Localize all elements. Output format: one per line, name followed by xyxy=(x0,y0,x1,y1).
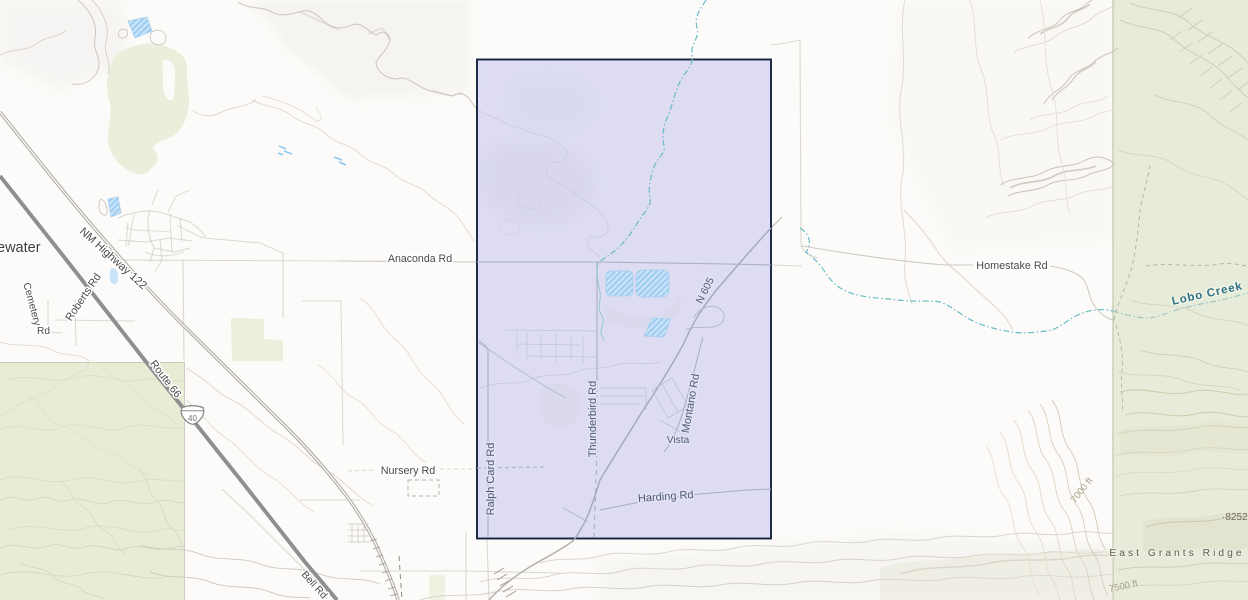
svg-text:Thunderbird Rd: Thunderbird Rd xyxy=(587,381,599,457)
svg-text:Rd: Rd xyxy=(37,326,50,337)
svg-text:Homestake Rd: Homestake Rd xyxy=(976,260,1047,272)
svg-text:Nursery Rd: Nursery Rd xyxy=(381,465,436,477)
svg-text:Anaconda Rd: Anaconda Rd xyxy=(388,253,452,265)
svg-text:East Grants Ridge: East Grants Ridge xyxy=(1109,548,1244,559)
svg-text:ewater: ewater xyxy=(0,240,41,256)
svg-text:Ralph Card Rd: Ralph Card Rd xyxy=(485,443,497,516)
svg-text:Vista: Vista xyxy=(667,435,690,446)
svg-text:·8252: ·8252 xyxy=(1222,512,1248,523)
svg-text:40: 40 xyxy=(188,414,197,423)
